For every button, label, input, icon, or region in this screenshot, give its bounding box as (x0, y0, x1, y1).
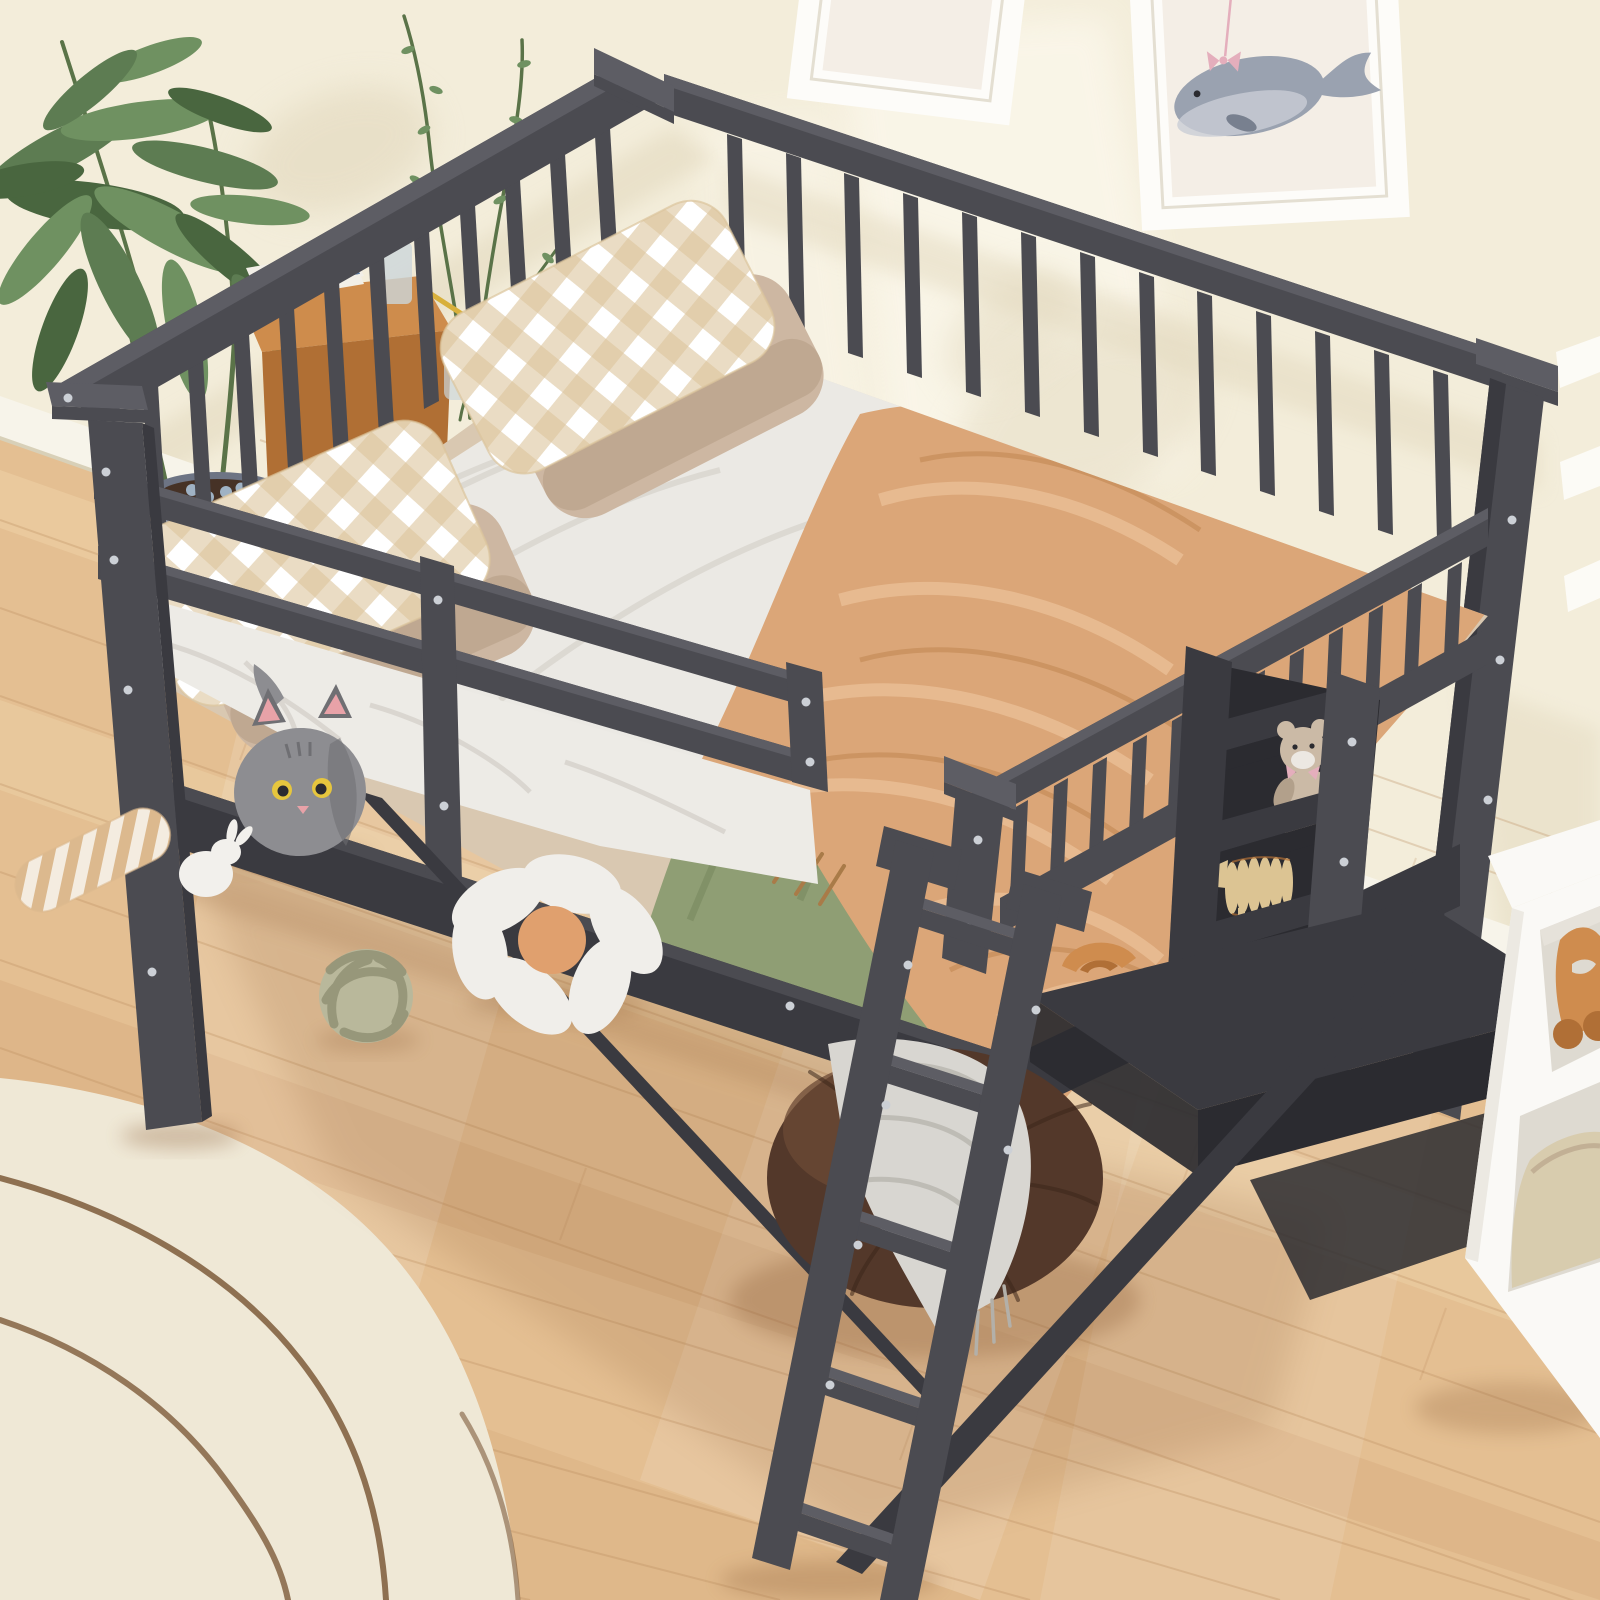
teddy-muzzle (1291, 751, 1315, 769)
sheep-slat (1281, 858, 1293, 906)
screw (1484, 796, 1493, 805)
screw (854, 1241, 863, 1250)
screw (1004, 1146, 1013, 1155)
screw (434, 596, 443, 605)
screw (102, 468, 111, 477)
screw (1348, 738, 1357, 747)
post-foot-shadow (120, 1123, 240, 1149)
screw (1340, 858, 1349, 867)
screw (904, 961, 913, 970)
screw (974, 836, 983, 845)
screw (1496, 656, 1505, 665)
screw (124, 686, 133, 695)
screw (1032, 1006, 1041, 1015)
post-cap (46, 382, 148, 410)
animal-wheel (1553, 1019, 1583, 1049)
picture-frame-whale (1128, 0, 1410, 231)
screw (882, 1101, 891, 1110)
sheep-slat (1269, 857, 1283, 909)
room-photo (0, 0, 1600, 1600)
screw (806, 758, 815, 767)
wooden-animal-toy (1553, 927, 1600, 1049)
screw (440, 802, 449, 811)
scene (0, 0, 1600, 1600)
screw (110, 556, 119, 565)
screw (802, 698, 811, 707)
cat-pupil (278, 786, 289, 797)
screw (1508, 516, 1517, 525)
guard-end-cap (786, 662, 828, 792)
flower-center (518, 906, 586, 974)
cat-pupil (316, 784, 327, 795)
screw (786, 1002, 795, 1011)
teddy-eye (1309, 743, 1314, 748)
screw (826, 1381, 835, 1390)
screw (64, 394, 73, 403)
screw (148, 968, 157, 977)
teddy-eye (1292, 744, 1297, 749)
knot-ball (319, 949, 413, 1043)
